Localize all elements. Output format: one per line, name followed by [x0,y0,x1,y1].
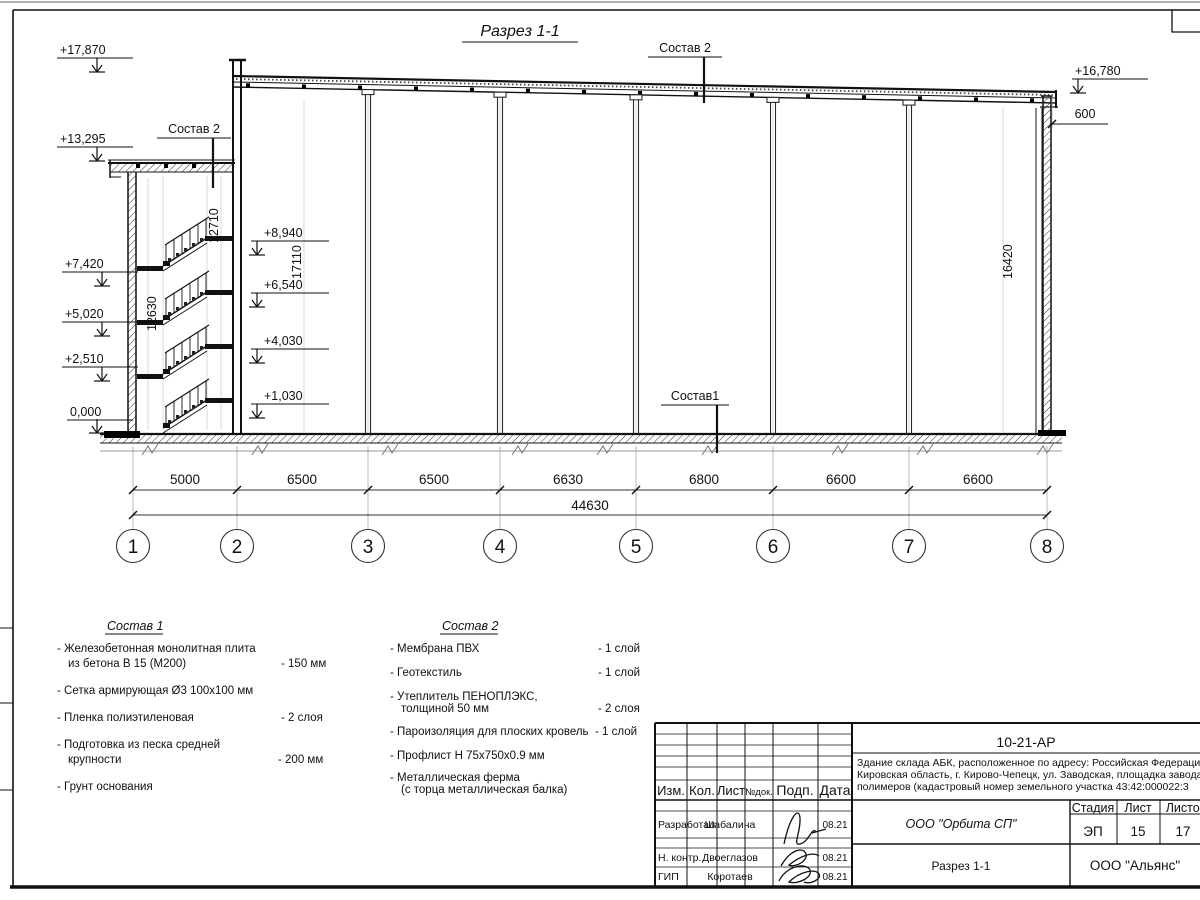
dim-6600b: 6600 [963,472,993,487]
dim-labels: 5000 6500 6500 6630 6800 6600 6600 [170,472,993,487]
role-2: ГИП [658,871,679,883]
dim-6500a: 6500 [287,472,317,487]
sheet-title: Разрез 1-1 [932,859,991,873]
titleblock-roles: Разработал Шабалина 08.21 Н. контр. Двое… [658,819,848,883]
notes2-row0-val: - 1 слой [598,643,640,655]
vdim-12630: 12630 [145,296,159,331]
callout-roof-main: Состав 2 [659,41,711,55]
signature-2 [779,866,819,883]
sheets-label: Листов [1166,801,1200,815]
elev-1030: +1,030 [264,389,303,403]
notes-sostav2: Состав 2 - Мембрана ПВХ - 1 слой - Геоте… [390,619,640,796]
elev-6540: +6,540 [264,278,303,292]
title-block: Изм. Кол. Лист №док. Подп. Дата Разработ… [655,723,1200,887]
notes2-row1-val: - 1 слой [598,667,640,679]
frame-corner-notch [1172,10,1200,32]
dim-6600a: 6600 [826,472,856,487]
col-podp: Подп. [776,782,813,798]
elev-7420: +7,420 [65,257,104,271]
vdim-12710: 12710 [207,208,221,243]
col-data: Дата [819,782,850,798]
section-title-text: Разрез 1-1 [480,23,559,40]
notes1-row2-l1: - Пленка полиэтиленовая [57,712,194,724]
date-1: 08.21 [822,853,847,864]
notes2-row0-l1: - Мембрана ПВХ [390,643,480,655]
section-drawing-svg: Разрез 1-1 [0,0,1200,900]
notes1-row0-l1: - Железобетонная монолитная плита [57,643,256,655]
callout-roof-tower: Состав 2 [168,122,220,136]
contractor-name: ООО "Альянс" [1090,858,1180,873]
signature-1 [781,850,819,866]
elevation-mark-right: +16,780 600 [1048,64,1148,128]
org-name: ООО "Орбита СП" [906,817,1018,831]
doc-number: 10-21-АР [996,734,1055,750]
notes2-row2-l1: - Утеплитель ПЕНОПЛЭКС, [390,691,538,703]
elev-4030: +4,030 [264,334,303,348]
stair-flights [163,217,209,433]
elev-13295: +13,295 [60,132,106,146]
helper-lines [148,96,1003,433]
notes2-row2-l2: толщиной 50 мм [401,703,489,715]
axis-7: 7 [904,537,915,558]
elev-17870: +17,870 [60,43,106,57]
notes2-row4-l1: - Профлист Н 75х750х0.9 мм [390,750,545,762]
notes2-row5-l1: - Металлическая ферма [390,772,521,784]
dim-6500b: 6500 [419,472,449,487]
axis-3: 3 [363,537,374,558]
notes1-row3-val: - 200 мм [278,754,323,766]
tower-roof-slab [110,163,233,172]
notes2-row1-l1: - Геотекстиль [390,667,462,679]
notes2-row2-val: - 2 слоя [598,703,640,715]
vdim-17110: 17110 [290,245,304,279]
axis-6: 6 [768,537,779,558]
signature-0 [784,813,816,844]
stair-tower [104,160,235,438]
name-1: Двоеглазов [702,852,758,864]
sheet-label: Лист [1124,801,1151,815]
floor-slab [100,434,1062,455]
elevation-marks-left: +17,870 +13,295 +7,420 +5,020 +2,510 0,0… [57,43,138,433]
notes1-title: Состав 1 [107,619,163,633]
hall-columns [362,90,1042,434]
axis-2: 2 [232,537,243,558]
stage-label: Стадия [1072,801,1115,815]
tower-foundation [104,431,140,438]
dim-5000: 5000 [170,472,200,487]
notes1-row0-l2: из бетона В 15 (М200) [68,658,186,670]
col-kol: Кол. [689,783,715,798]
date-0: 08.21 [822,820,847,831]
dim-600: 600 [1075,107,1096,121]
axis-5: 5 [631,537,642,558]
notes2-title: Состав 2 [442,619,498,633]
notes1-row2-val: - 2 слоя [281,712,323,724]
notes1-row0-val: - 150 мм [281,658,326,670]
col-izm: Изм. [657,783,685,798]
main-roof [233,76,1058,108]
col-ndoc: №док. [745,787,773,798]
sheets-total: 17 [1175,824,1190,839]
sheet-number: 15 [1130,824,1145,839]
notes2-row3-l1: - Пароизоляция для плоских кровель [390,726,589,738]
callouts: Состав 2 Состав 2 Состав1 [157,41,729,453]
dim-6800: 6800 [689,472,719,487]
elev-8940: +8,940 [264,226,303,240]
name-0: Шабалина [705,819,756,831]
callout-floor: Состав1 [671,389,719,403]
grid2-wall [229,60,246,434]
titleblock-headers: Изм. Кол. Лист №док. Подп. Дата [657,782,851,798]
stage-value: ЭП [1083,824,1102,839]
ground-break-marks [142,444,1053,455]
dim-total: 44630 [571,498,609,513]
grid-bubbles: 1 2 3 4 5 6 7 8 [117,530,1064,563]
col-list: Лист [717,783,745,798]
vdim-16420: 16420 [1001,244,1015,279]
elevation-marks-mid: +8,940 +6,540 +4,030 +1,030 [249,226,329,418]
role-1: Н. контр. [658,852,701,864]
notes1-row3-l2: крупности [68,754,121,766]
name-2: Коротаев [707,871,753,883]
axis-4: 4 [495,537,506,558]
notes2-row3-val: - 1 слой [595,726,637,738]
notes-sostav1: Состав 1 - Железобетонная монолитная пли… [57,619,326,793]
dim-6630: 6630 [553,472,583,487]
date-2: 08.21 [822,872,847,883]
elev-0000: 0,000 [70,405,101,419]
elev-2510: +2,510 [65,352,104,366]
axis-8: 8 [1042,537,1053,558]
elev-5020: +5,020 [65,307,104,321]
axis-1: 1 [128,537,139,558]
tower-left-wall [128,172,136,434]
section-title: Разрез 1-1 [462,23,578,42]
elev-16780: +16,780 [1075,64,1121,78]
notes1-row4-l1: - Грунт основания [57,781,153,793]
notes2-row5-l2: (с торца металлическая балка) [401,784,568,796]
extension-lines [133,446,1047,529]
object-line3: полимеров (кадастровый номер земельного … [857,781,1189,793]
object-line2: Кировская область, г. Кирово-Чепецк, ул.… [857,769,1200,781]
object-line1: Здание склада АБК, расположенное по адре… [857,757,1200,769]
object-description: Здание склада АБК, расположенное по адре… [857,757,1200,793]
drawing-sheet: Разрез 1-1 [0,0,1200,900]
dimension-chain: 5000 6500 6500 6630 6800 6600 6600 44630 [129,446,1051,529]
notes1-row1-l1: - Сетка армирующая Ø3 100х100 мм [57,685,253,697]
notes1-row3-l1: - Подготовка из песка средней [57,739,220,751]
